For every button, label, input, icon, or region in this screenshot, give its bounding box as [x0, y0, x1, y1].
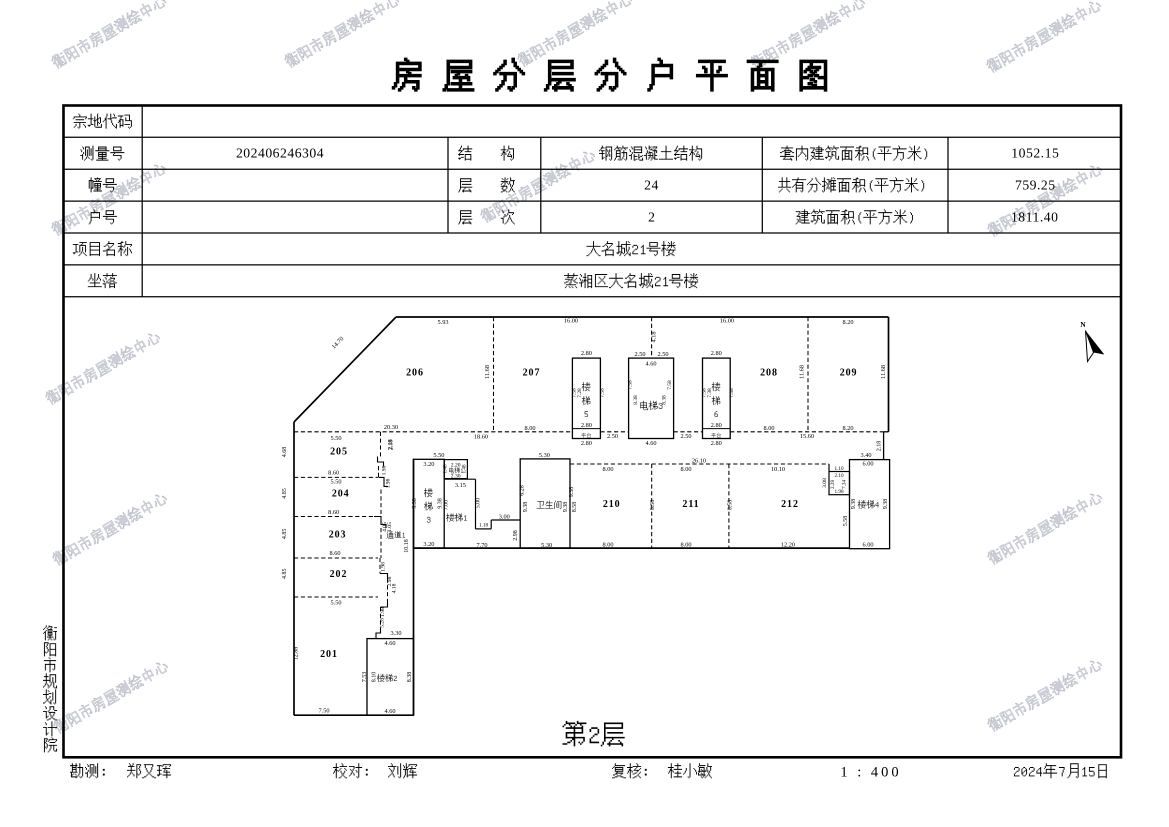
- svg-text:7.58: 7.58: [667, 380, 673, 390]
- svg-text:1.98: 1.98: [381, 562, 387, 572]
- svg-text:6.00: 6.00: [862, 460, 873, 467]
- svg-text:6.00: 6.00: [862, 542, 873, 549]
- svg-text:5.28: 5.28: [380, 618, 386, 628]
- svg-text:9.38: 9.38: [569, 487, 575, 498]
- svg-text:2.50: 2.50: [680, 433, 691, 440]
- svg-text:4.85: 4.85: [282, 529, 288, 540]
- svg-text:8.00: 8.00: [680, 466, 691, 473]
- svg-text:2.50: 2.50: [607, 433, 618, 440]
- svg-text:4.85: 4.85: [282, 568, 288, 579]
- svg-text:9.38: 9.38: [563, 502, 569, 513]
- svg-text:5.30: 5.30: [541, 542, 552, 549]
- svg-text:14.70: 14.70: [0, 0, 7, 2]
- svg-text:1811.40: 1811.40: [1011, 209, 1058, 224]
- svg-text:8.60: 8.60: [328, 509, 339, 516]
- svg-text:208: 208: [760, 368, 778, 379]
- svg-text:2: 2: [648, 209, 655, 224]
- svg-text:3.15: 3.15: [455, 482, 466, 489]
- svg-text:3.20: 3.20: [423, 461, 434, 468]
- svg-text:3.20: 3.20: [423, 541, 434, 548]
- svg-text:1052.15: 1052.15: [1011, 146, 1059, 161]
- svg-text:8.00: 8.00: [602, 466, 613, 473]
- svg-text:26.10: 26.10: [692, 458, 706, 465]
- svg-text:2.98: 2.98: [513, 530, 519, 541]
- svg-text:206: 206: [406, 368, 424, 379]
- svg-text:1.98: 1.98: [382, 465, 388, 475]
- svg-text:8.38: 8.38: [662, 395, 668, 405]
- svg-text:2.80: 2.80: [711, 422, 722, 429]
- svg-text:8.00: 8.00: [763, 425, 774, 432]
- svg-text:8.58: 8.58: [650, 500, 656, 511]
- svg-text:759.25: 759.25: [1015, 177, 1056, 192]
- svg-text:5.50: 5.50: [330, 435, 341, 442]
- svg-text:5.50: 5.50: [330, 479, 341, 486]
- svg-text:204: 204: [332, 489, 350, 500]
- svg-text:11.68: 11.68: [799, 365, 806, 379]
- svg-text:1.48: 1.48: [461, 464, 467, 473]
- svg-text:2.20: 2.20: [451, 463, 461, 469]
- svg-text:3.40: 3.40: [860, 452, 871, 459]
- svg-text:210: 210: [603, 499, 621, 510]
- svg-text:7.58: 7.58: [729, 388, 735, 398]
- svg-text:5.30: 5.30: [539, 452, 550, 459]
- svg-text:9.38: 9.38: [883, 499, 889, 510]
- svg-text:24: 24: [644, 177, 659, 192]
- svg-text:7.50: 7.50: [318, 708, 329, 715]
- svg-text:1.10: 1.10: [834, 466, 843, 472]
- svg-text:8.58: 8.58: [727, 500, 733, 511]
- svg-text:4.18: 4.18: [392, 583, 398, 593]
- svg-text:8.00: 8.00: [680, 542, 691, 549]
- svg-text:2.80: 2.80: [711, 440, 722, 447]
- svg-text:10.10: 10.10: [771, 466, 785, 473]
- svg-text:5.00: 5.00: [475, 498, 481, 509]
- svg-text:4.68: 4.68: [282, 447, 288, 458]
- svg-text:1.05: 1.05: [387, 522, 393, 532]
- svg-text:4.60: 4.60: [384, 640, 395, 647]
- svg-text:4.18: 4.18: [651, 331, 658, 342]
- svg-text:7.28: 7.28: [577, 388, 583, 398]
- svg-text:7.58: 7.58: [599, 388, 605, 398]
- svg-text:7.38: 7.38: [707, 388, 713, 398]
- svg-text:15.60: 15.60: [800, 433, 814, 440]
- svg-text:5.50: 5.50: [330, 600, 341, 607]
- svg-text:211: 211: [682, 499, 699, 510]
- svg-text:12.88: 12.88: [294, 647, 300, 661]
- svg-text:9.38: 9.38: [412, 498, 418, 509]
- svg-text:8.00: 8.00: [524, 425, 535, 432]
- svg-text:18.60: 18.60: [474, 434, 488, 441]
- svg-text:8.20: 8.20: [842, 425, 853, 432]
- svg-text:1.48: 1.48: [443, 464, 449, 473]
- svg-text:3.00: 3.00: [499, 514, 510, 521]
- svg-text:1.98: 1.98: [386, 478, 392, 488]
- svg-text:8.38: 8.38: [407, 672, 413, 683]
- svg-text:2.80: 2.80: [581, 350, 592, 357]
- svg-text:8.38: 8.38: [633, 395, 639, 405]
- svg-text:16.00: 16.00: [564, 318, 578, 325]
- svg-text:8.60: 8.60: [329, 550, 340, 557]
- svg-text:202406246304: 202406246304: [236, 146, 324, 161]
- svg-text:209: 209: [840, 368, 858, 379]
- svg-text:11.68: 11.68: [484, 365, 491, 379]
- svg-text:12.20: 12.20: [781, 542, 795, 549]
- svg-text:3.30: 3.30: [390, 630, 401, 637]
- svg-text:11.68: 11.68: [880, 365, 887, 379]
- svg-text:4.85: 4.85: [282, 488, 288, 499]
- svg-text:2.50: 2.50: [634, 351, 645, 358]
- svg-text:8.60: 8.60: [328, 470, 339, 477]
- svg-text:1.98: 1.98: [380, 607, 386, 617]
- svg-text:9.38: 9.38: [851, 499, 857, 510]
- svg-text:7.70: 7.70: [476, 542, 487, 549]
- svg-text:4.60: 4.60: [384, 708, 395, 715]
- svg-text:207: 207: [523, 368, 541, 379]
- svg-text:205: 205: [330, 447, 348, 458]
- svg-text:1 : 400: 1 : 400: [840, 764, 901, 780]
- svg-text:2.80: 2.80: [581, 422, 592, 429]
- svg-text:N: N: [1080, 320, 1086, 329]
- svg-text:20.30: 20.30: [384, 424, 398, 431]
- svg-text:8.10: 8.10: [372, 672, 378, 683]
- svg-text:202: 202: [330, 569, 348, 580]
- svg-text:8.58: 8.58: [572, 502, 578, 513]
- svg-text:7.53: 7.53: [362, 672, 368, 683]
- svg-text:9.38: 9.38: [523, 502, 529, 513]
- svg-text:2.10: 2.10: [834, 473, 843, 479]
- svg-text:2.18: 2.18: [876, 441, 882, 452]
- svg-text:10.18: 10.18: [404, 539, 410, 553]
- svg-text:7.58: 7.58: [628, 380, 634, 390]
- svg-text:1.18: 1.18: [479, 522, 488, 528]
- svg-text:8.00: 8.00: [602, 542, 613, 549]
- svg-text:4.60: 4.60: [645, 361, 656, 368]
- svg-text:3.08: 3.08: [822, 478, 828, 488]
- svg-text:7.34: 7.34: [842, 480, 848, 489]
- svg-text:2.80: 2.80: [711, 350, 722, 357]
- svg-text:16.00: 16.00: [720, 318, 734, 325]
- svg-text:203: 203: [329, 530, 347, 541]
- svg-text:2.28: 2.28: [830, 480, 836, 489]
- svg-text:1.98: 1.98: [834, 489, 843, 495]
- svg-text:201: 201: [320, 649, 338, 660]
- svg-text:2.18: 2.18: [389, 440, 395, 451]
- svg-text:2.30: 2.30: [451, 473, 461, 479]
- svg-text:5.50: 5.50: [433, 452, 444, 459]
- svg-text:2.80: 2.80: [581, 440, 592, 447]
- svg-text:6.28: 6.28: [519, 485, 525, 496]
- svg-text:2.50: 2.50: [657, 351, 668, 358]
- svg-text:14.70: 14.70: [330, 335, 345, 350]
- svg-text:212: 212: [781, 499, 799, 510]
- svg-text:4.60: 4.60: [645, 440, 656, 447]
- svg-text:8.20: 8.20: [842, 319, 853, 326]
- svg-text:7.00: 7.00: [443, 500, 449, 511]
- svg-text:5.58: 5.58: [843, 516, 849, 527]
- svg-text:5.93: 5.93: [437, 319, 448, 326]
